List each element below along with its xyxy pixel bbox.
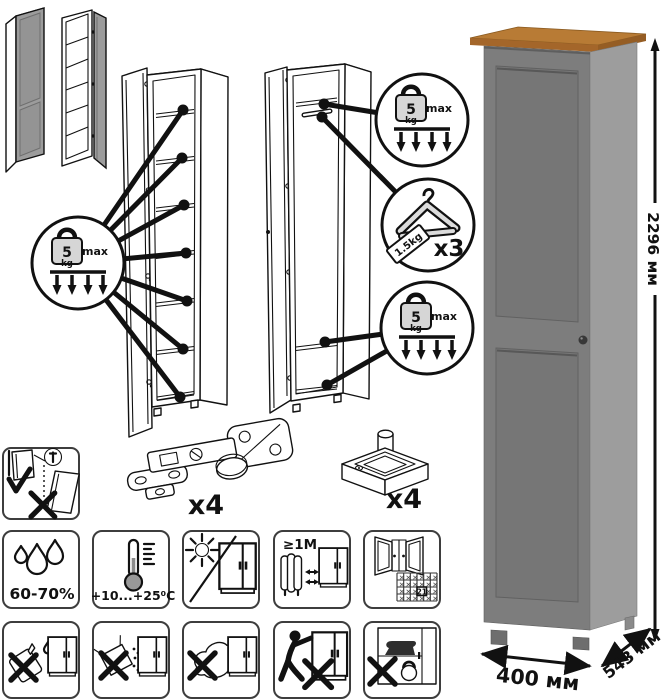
wardrobe-side [590, 42, 637, 630]
foot-front-right [573, 637, 589, 650]
depth-dimension: 543 мм [599, 627, 664, 683]
wardrobe-interior-diagram: 5 kg max 1.5kg x3 5 kg max [255, 55, 475, 445]
person-icon [281, 631, 311, 680]
load-unit: kg [405, 116, 417, 126]
shelf-load-badge: 5 kg max [32, 217, 124, 309]
wardrobe-product [470, 27, 646, 650]
hinge-hardware: x4 [118, 413, 298, 520]
product-render: 2296 мм 400 мм 543 мм [455, 10, 672, 700]
hinge-quantity: x4 [188, 490, 224, 521]
load-max: max [426, 102, 452, 115]
no-sunlight-panel [182, 530, 260, 609]
radiator-icon [281, 554, 302, 595]
thermometer-icon [125, 540, 154, 591]
no-liquids-panel [2, 621, 80, 699]
wall-anchor-warning-panel [2, 447, 80, 520]
door-lower-panel [496, 348, 578, 602]
distance-value: ≥1М [283, 537, 317, 553]
tipping-cabinet-icon [31, 465, 79, 517]
temperature-value: +10...+25⁰C [91, 588, 176, 603]
no-heavy-items-panel [363, 621, 441, 699]
wardrobe-icon [319, 548, 347, 587]
wardrobe-icon [228, 637, 256, 676]
instruction-sheet: 5 kg max [0, 0, 672, 700]
anvil-icon [385, 641, 416, 655]
humidity-panel: 60-70% [2, 530, 80, 609]
load-unit: kg [410, 324, 422, 334]
open-window-icon [375, 537, 423, 575]
foot-quantity: x4 [386, 484, 422, 515]
door-upper-panel [496, 66, 578, 322]
calendar-day: 21 [417, 587, 427, 596]
spacing-arrows-icon [305, 569, 319, 585]
load-max: max [431, 310, 457, 323]
foot-hardware: x4 [312, 420, 462, 520]
sun-icon [186, 534, 218, 566]
foot-front-left [491, 630, 507, 645]
humidity-value: 60-70% [9, 585, 75, 603]
width-dimension: 400 мм [495, 663, 581, 696]
water-drops-icon [15, 540, 63, 574]
no-wet-sponge-panel [182, 621, 260, 699]
door-knob [579, 336, 588, 345]
load-max: max [82, 245, 108, 258]
wardrobe-icon [48, 637, 76, 676]
ventilation-panel: 21 [363, 530, 441, 609]
height-dimension: 2296 мм [644, 212, 662, 286]
heater-distance-panel: ≥1М [273, 530, 351, 609]
temperature-panel: +10...+25⁰C [92, 530, 170, 609]
foot-back-right [625, 616, 634, 630]
load-unit: kg [61, 259, 73, 269]
no-dragging-panel [273, 621, 351, 699]
calendar-icon: 21 [397, 573, 437, 601]
no-powders-panel [92, 621, 170, 699]
shelf-unit-diagram: 5 kg max [18, 55, 233, 445]
wardrobe-icon [138, 637, 166, 676]
